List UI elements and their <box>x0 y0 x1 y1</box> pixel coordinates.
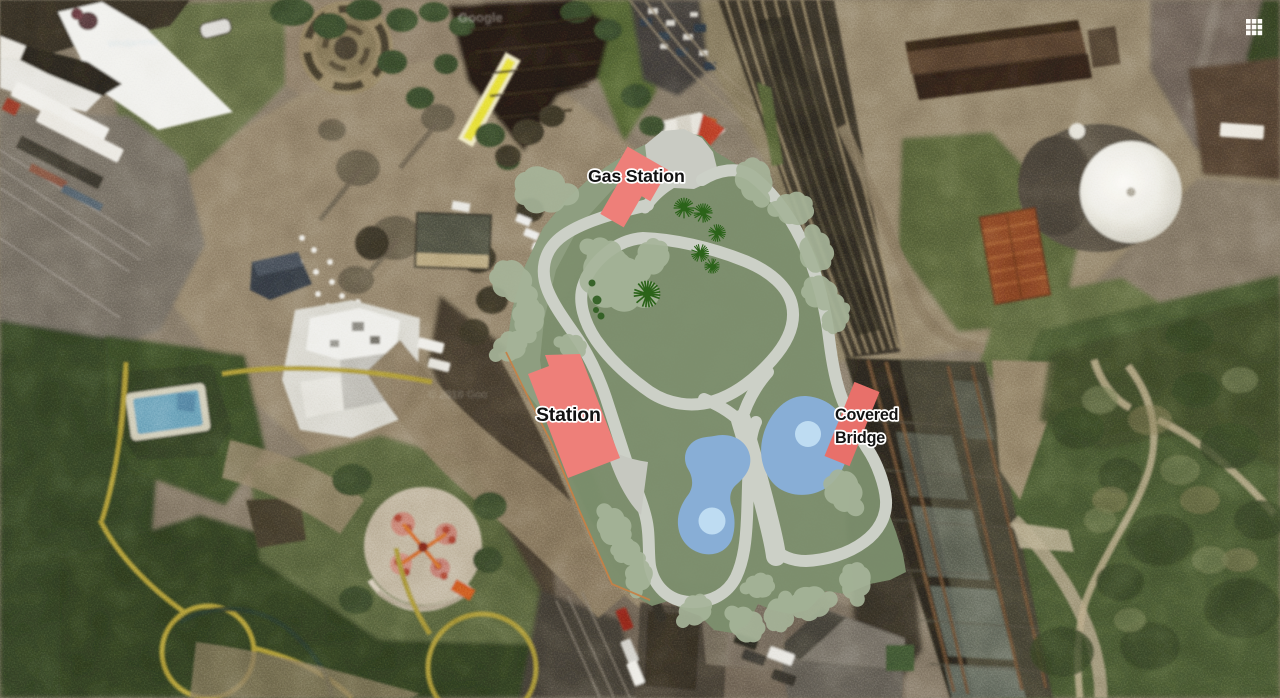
svg-text:Google: Google <box>458 10 503 25</box>
svg-text:Gas Station: Gas Station <box>588 166 685 186</box>
svg-text:© 2018 Goo: © 2018 Goo <box>428 389 487 401</box>
svg-text:Covered: Covered <box>835 406 898 424</box>
svg-text:Station: Station <box>536 404 601 426</box>
svg-text:Bridge: Bridge <box>835 429 885 447</box>
